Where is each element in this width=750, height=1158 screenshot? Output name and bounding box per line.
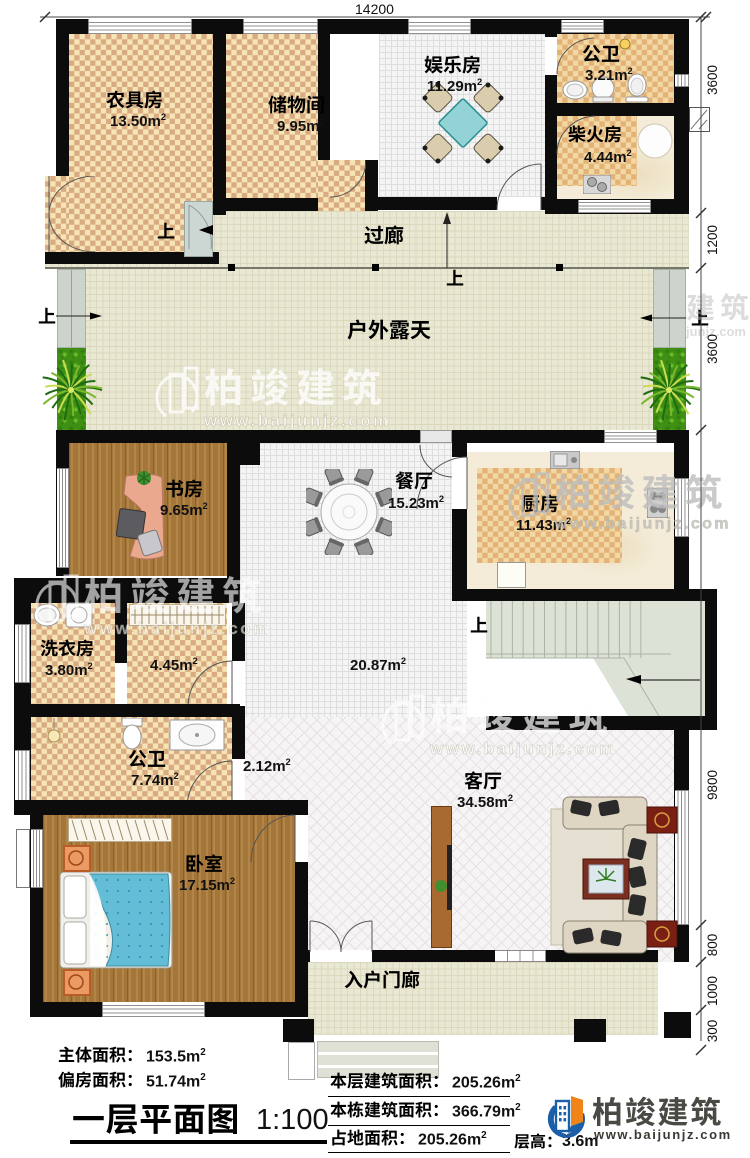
svg-text:www.baijunjz.com: www.baijunjz.com [203, 411, 387, 430]
svg-text:www.baijunjz.com: www.baijunjz.com [429, 739, 613, 758]
svg-text:www.baijunjz.com: www.baijunjz.com [83, 619, 267, 638]
